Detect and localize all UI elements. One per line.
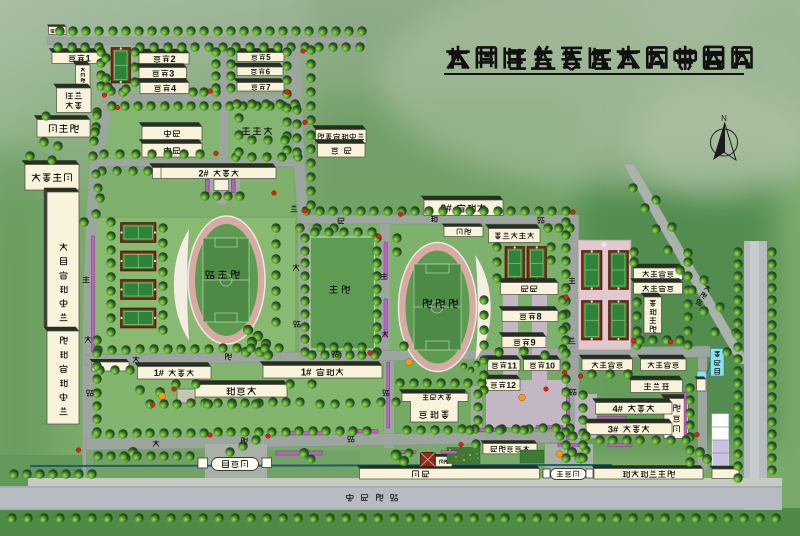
svg-text:N: N [721, 114, 727, 123]
svg-text:#: # [618, 404, 624, 415]
svg-text:0: 0 [550, 360, 555, 370]
svg-text:6: 6 [266, 67, 271, 76]
svg-text:#: # [203, 169, 208, 179]
svg-text:#: # [159, 368, 164, 378]
svg-text:#: # [613, 424, 619, 435]
svg-text:#: # [306, 367, 312, 378]
svg-text:5: 5 [266, 53, 271, 62]
svg-text:4: 4 [171, 84, 177, 94]
svg-text:1: 1 [512, 360, 517, 370]
svg-text:2: 2 [511, 380, 516, 390]
svg-text:9: 9 [530, 338, 535, 348]
svg-text:3: 3 [169, 69, 174, 79]
svg-text:2: 2 [170, 54, 175, 64]
svg-text:8: 8 [536, 312, 541, 322]
svg-text:7: 7 [266, 83, 271, 92]
